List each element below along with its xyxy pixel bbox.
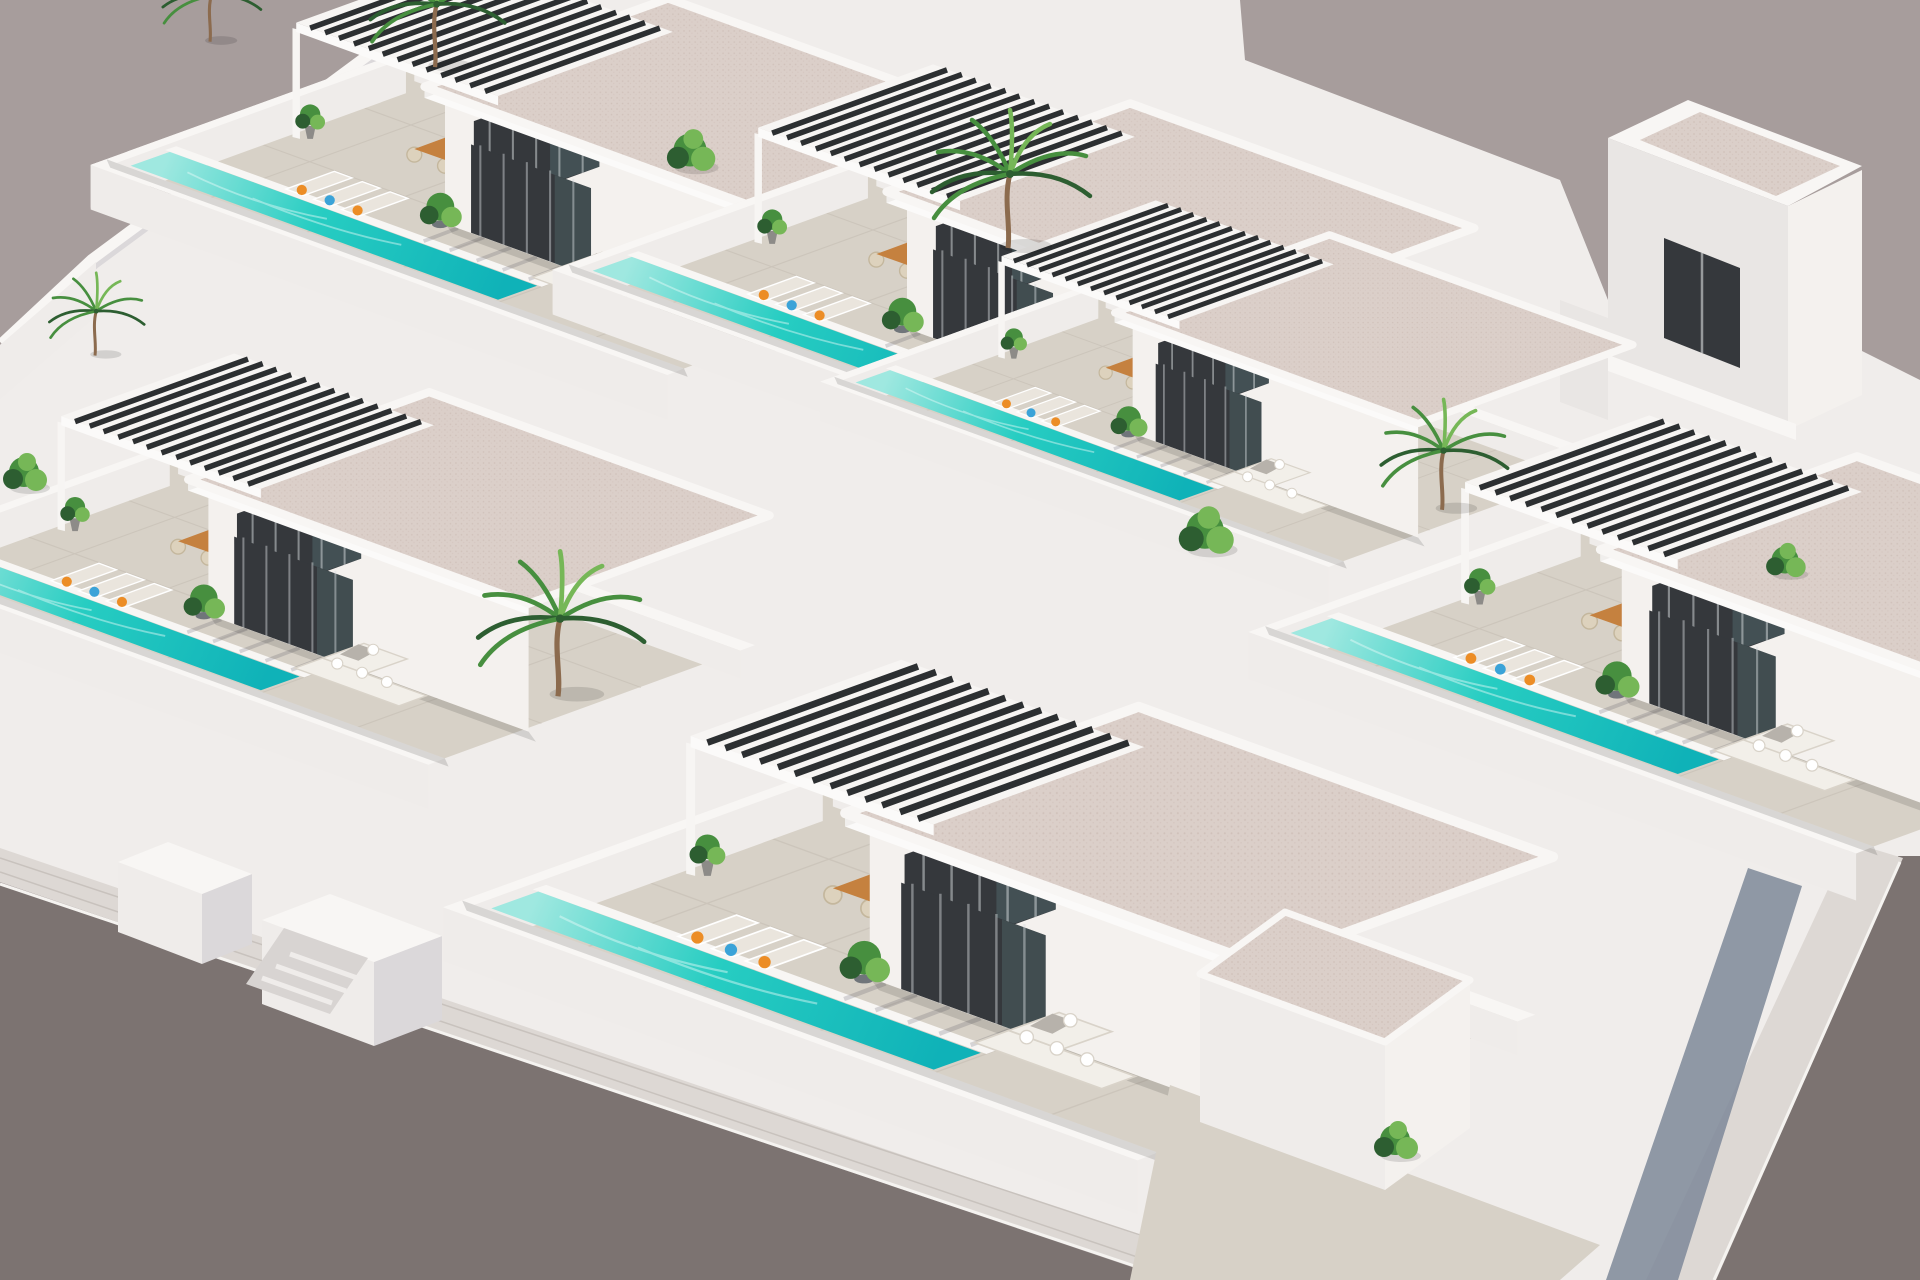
villa-development-render [0, 0, 1920, 1280]
tower-right-face [1788, 170, 1862, 430]
render-stage [0, 0, 1920, 1280]
